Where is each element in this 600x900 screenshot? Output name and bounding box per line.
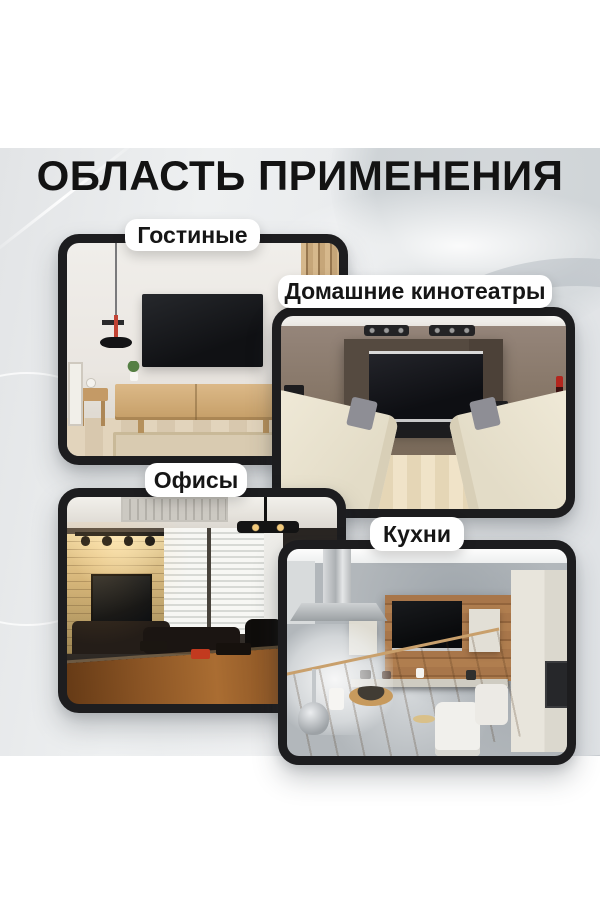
leaning-frame — [68, 362, 83, 426]
table-leg — [101, 401, 105, 427]
pendant-lamp — [237, 521, 299, 533]
label-kitchens-text: Кухни — [383, 521, 451, 548]
laptop-bag — [216, 643, 251, 655]
label-offices: Офисы — [145, 463, 247, 497]
plant-pot — [130, 372, 138, 382]
white-chair — [475, 684, 509, 725]
console-seam — [195, 384, 197, 420]
projector-screen — [369, 351, 483, 423]
kitchen-photo — [287, 549, 567, 756]
label-kitchens: Кухни — [370, 517, 464, 551]
paper-towel — [329, 688, 344, 711]
white-chair — [435, 702, 480, 756]
coaster — [413, 715, 435, 723]
product-infographic: ОБЛАСТЬ ПРИМЕНЕНИЯ — [0, 0, 600, 900]
pendant-cord — [264, 497, 266, 522]
window-mullion — [207, 528, 211, 634]
lamp-cord — [115, 243, 118, 324]
console-leg — [263, 420, 269, 433]
lamp-cord-red — [114, 315, 118, 336]
home-theater-photo — [281, 316, 566, 509]
clock — [86, 378, 96, 388]
console-leg — [138, 420, 144, 433]
chrome-stand — [312, 669, 316, 706]
warm-glow — [67, 522, 191, 646]
page-title: ОБЛАСТЬ ПРИМЕНЕНИЯ — [0, 152, 600, 202]
ceiling-vent — [121, 497, 228, 522]
red-box — [191, 649, 210, 659]
ceiling-speaker — [364, 325, 410, 337]
label-home-theaters-text: Домашние кинотеатры — [284, 278, 545, 305]
pendant-lamp — [100, 337, 133, 349]
card-kitchens — [278, 540, 576, 765]
label-living-rooms-text: Гостиные — [137, 222, 247, 249]
hood-chimney — [323, 549, 351, 605]
label-offices-text: Офисы — [154, 467, 239, 494]
tv-screen — [142, 294, 263, 366]
ceiling — [281, 316, 566, 326]
label-living-rooms: Гостиные — [125, 219, 260, 251]
steel-kettle — [298, 702, 329, 735]
card-home-theaters — [272, 307, 575, 518]
label-home-theaters: Домашние кинотеатры — [278, 275, 552, 308]
built-in-oven — [545, 661, 567, 708]
range-hood — [290, 603, 388, 622]
tv-console — [115, 384, 288, 420]
ceiling-speaker — [429, 325, 475, 337]
